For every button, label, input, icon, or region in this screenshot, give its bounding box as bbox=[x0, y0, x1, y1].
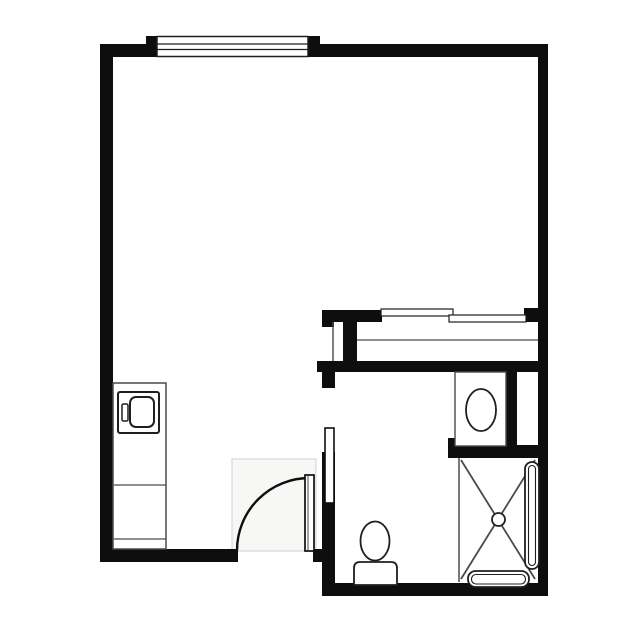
floorplan-page bbox=[0, 0, 636, 636]
wall-above-shower bbox=[448, 445, 548, 458]
closet-sliding-door-right bbox=[449, 315, 526, 322]
wall-bottom-main bbox=[100, 549, 238, 562]
floorplan-svg bbox=[0, 0, 636, 636]
wall-closet-divider bbox=[343, 322, 357, 362]
appliance-handle bbox=[122, 404, 128, 421]
bathroom-pocket-door-panel bbox=[325, 428, 334, 503]
appliance-door bbox=[130, 397, 154, 427]
window-frame bbox=[157, 37, 308, 57]
wall-bath-door-stub bbox=[322, 372, 335, 388]
shower-grab-bar-right bbox=[525, 462, 539, 569]
window-jamb-right bbox=[308, 36, 320, 57]
wall-left bbox=[100, 44, 113, 562]
vanity-sink-basin bbox=[466, 389, 496, 431]
closet-sliding-door-left bbox=[381, 309, 453, 316]
shower-grab-bar-bottom bbox=[468, 571, 529, 587]
wall-top-right bbox=[320, 44, 548, 57]
wall-vanity-right bbox=[506, 372, 517, 446]
toilet-bowl bbox=[361, 522, 390, 561]
window-jamb-left bbox=[146, 36, 158, 57]
shower-drain bbox=[492, 513, 505, 526]
wall-closet-bottom bbox=[317, 361, 548, 372]
door-swing-area bbox=[232, 459, 316, 551]
toilet-tank bbox=[354, 562, 397, 585]
entry-door-leaf bbox=[305, 475, 314, 551]
wall-closet-top-cap bbox=[322, 310, 334, 327]
